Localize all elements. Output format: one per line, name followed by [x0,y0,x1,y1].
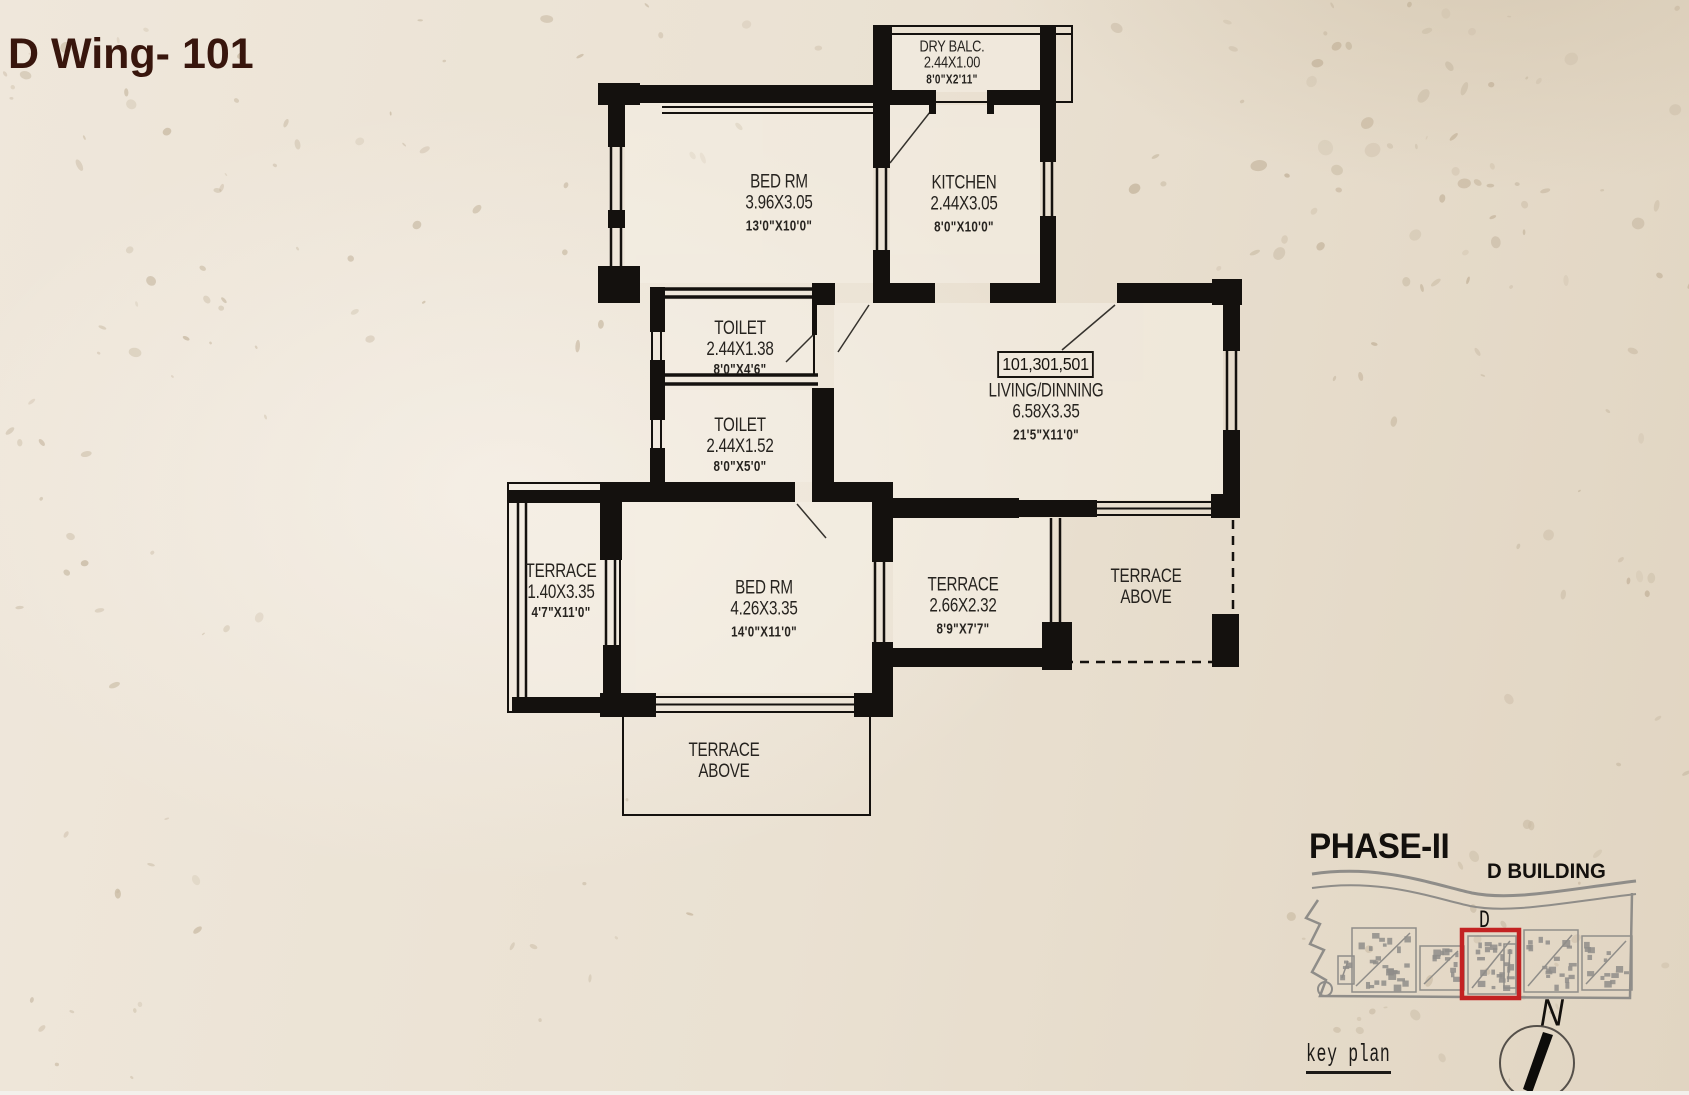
room-name: TERRACE ABOVE [684,741,764,783]
north-label: N [1540,993,1564,1036]
room-size-imperial: 13'0"X10'0" [745,219,812,235]
room-size-metric: 2.44X3.05 [930,195,997,216]
bottom-edge-strip [0,1091,1689,1095]
room-name: BED RM [745,173,812,194]
room-label-living-dining: LIVING/DINNING 6.58X3.35 21'5"X11'0" [989,382,1104,445]
room-size-metric: 2.44X1.00 [920,56,985,72]
room-size-imperial: 8'0"X10'0" [930,220,997,236]
room-size-imperial: 8'0"X4'6" [706,363,773,379]
keyplan-map [1306,871,1636,998]
floor-plan-drawing [0,0,1689,1095]
room-size-imperial: 8'0"X5'0" [706,460,773,476]
keyplan-phase-title: PHASE-II [1309,827,1449,867]
keyplan-building-title: D BUILDING [1487,860,1606,884]
room-size-metric: 1.40X3.35 [526,583,597,604]
room-size-imperial: 21'5"X11'0" [989,428,1104,444]
room-size-imperial: 8'9"X7'7" [928,622,999,638]
room-size-imperial: 4'7"X11'0" [526,606,597,622]
room-size-metric: 3.96X3.05 [745,194,812,215]
room-label-terrace-above-right: TERRACE ABOVE [1106,567,1186,609]
keyplan-label-underline [1306,1071,1391,1074]
room-name: TERRACE ABOVE [1106,567,1186,609]
room-label-bedroom-2: BED RM 4.26X3.35 14'0"X11'0" [730,579,797,642]
room-name: DRY BALC. [920,39,985,55]
keyplan-label: key plan [1306,1040,1391,1069]
room-label-toilet-2: TOILET 2.44X1.52 8'0"X5'0" [706,416,773,476]
room-label-dry-balcony: DRY BALC. 2.44X1.00 8'0"X2'11" [920,39,985,86]
room-name: TERRACE [928,576,999,597]
room-size-imperial: 14'0"X11'0" [730,625,797,641]
room-size-metric: 4.26X3.35 [730,600,797,621]
room-name: KITCHEN [930,174,997,195]
room-size-imperial: 8'0"X2'11" [920,73,985,87]
room-label-terrace-2: TERRACE 2.66X2.32 8'9"X7'7" [928,576,999,639]
room-label-terrace-above-bottom: TERRACE ABOVE [684,741,764,783]
room-name: BED RM [730,579,797,600]
north-compass-icon [1500,1026,1574,1095]
page-title: D Wing- 101 [8,30,254,79]
room-name: LIVING/DINNING [989,382,1104,403]
room-label-toilet-1: TOILET 2.44X1.38 8'0"X4'6" [706,319,773,379]
unit-numbers-box: 101,301,501 [997,351,1094,378]
room-name: TERRACE [526,562,597,583]
floor-plan-page: { "title": "D Wing- 101", "plan": { "uni… [0,0,1689,1095]
room-size-metric: 6.58X3.35 [989,403,1104,424]
room-size-metric: 2.66X2.32 [928,597,999,618]
room-label-bedroom-1: BED RM 3.96X3.05 13'0"X10'0" [745,173,812,236]
room-name: TOILET [706,319,773,340]
room-size-metric: 2.44X1.38 [706,340,773,361]
room-size-metric: 2.44X1.52 [706,437,773,458]
keyplan-building-mark: D [1479,906,1490,935]
room-label-kitchen: KITCHEN 2.44X3.05 8'0"X10'0" [930,174,997,237]
room-label-terrace-left: TERRACE 1.40X3.35 4'7"X11'0" [526,562,597,622]
room-name: TOILET [706,416,773,437]
